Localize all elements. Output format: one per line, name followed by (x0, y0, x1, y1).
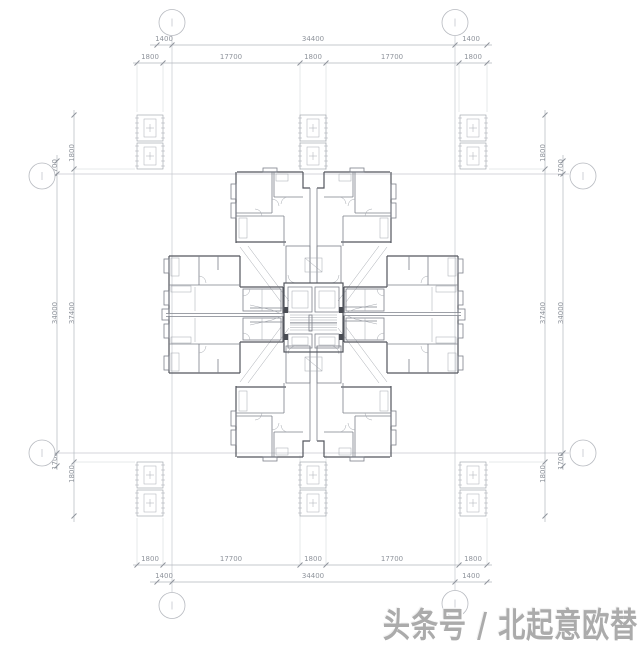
axis-bubbles (29, 10, 596, 619)
dimension-text: 1800 (464, 53, 482, 61)
stair (290, 315, 337, 331)
dimension-text: 1400 (155, 35, 173, 43)
dimension-text: 34400 (302, 572, 324, 580)
dimension-text: 1700 (557, 452, 565, 470)
dimension-text: 1800 (304, 53, 322, 61)
east-wing (343, 256, 465, 373)
dimension-text: 37400 (68, 302, 76, 324)
west-wing (162, 256, 284, 373)
dimension-text: 1700 (557, 159, 565, 177)
dimension-chains (57, 45, 563, 582)
dimension-text: 1800 (304, 555, 322, 563)
dimension-text: 37400 (539, 302, 547, 324)
dimension-text: 1800 (141, 53, 159, 61)
dimension-text: 17700 (220, 555, 242, 563)
dimension-text: 1800 (141, 555, 159, 563)
dimension-text: 1800 (464, 555, 482, 563)
watermark: 头条号 / 北起意欧替 (383, 609, 638, 643)
south-wing (231, 327, 396, 461)
floor-plan (162, 168, 465, 461)
dimension-text: 34400 (302, 35, 324, 43)
dimension-text: 1800 (539, 144, 547, 162)
dimension-text: 1800 (68, 144, 76, 162)
dimension-text: 1400 (462, 572, 480, 580)
dimension-text: 17700 (381, 53, 403, 61)
grid-lines (56, 36, 569, 592)
elevator-bank-top (288, 287, 339, 312)
dimension-text: 17700 (220, 53, 242, 61)
dimension-text: 17700 (381, 555, 403, 563)
dimension-text: 34000 (51, 302, 59, 324)
north-wing (231, 168, 396, 302)
core (284, 283, 343, 352)
dimension-text: 34000 (557, 302, 565, 324)
dimension-text: 1400 (155, 572, 173, 580)
dimension-text: 1800 (68, 465, 76, 483)
dimension-text: 1800 (539, 465, 547, 483)
floor-plan-canvas: 1400344001400180017700180017700180018001… (0, 0, 640, 645)
floor-plan-page: 1400344001400180017700180017700180018001… (0, 0, 640, 645)
dimension-text: 1400 (462, 35, 480, 43)
